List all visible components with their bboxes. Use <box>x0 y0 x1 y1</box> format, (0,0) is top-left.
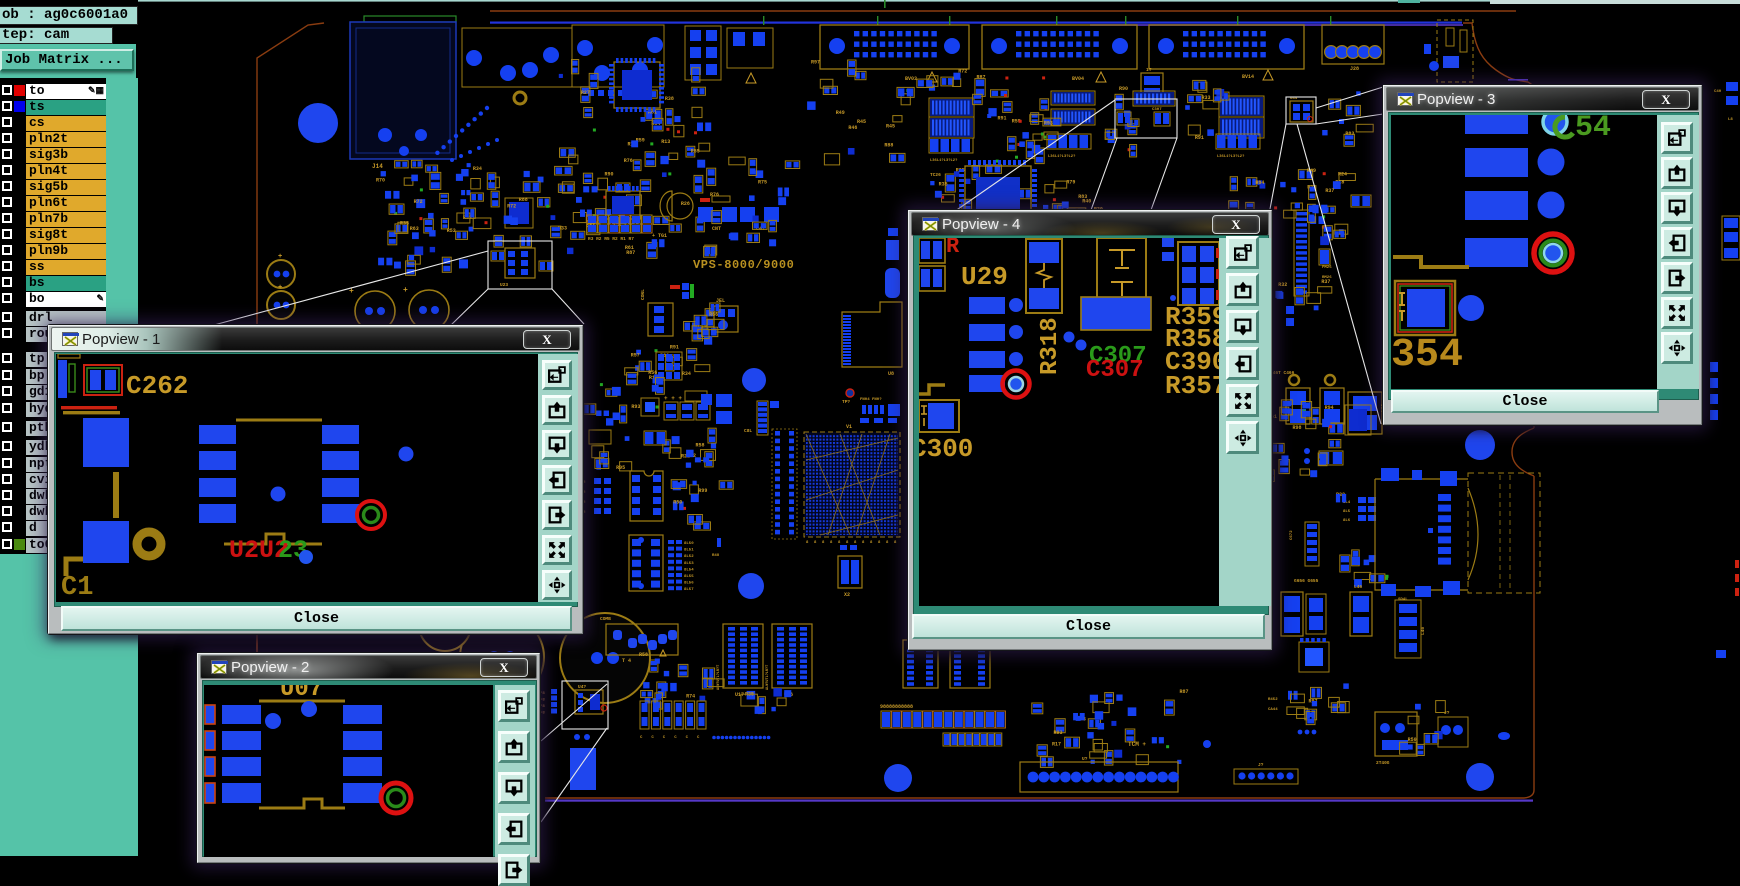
svg-text:U29: U29 <box>961 262 1008 292</box>
svg-text:R58: R58 <box>696 443 705 449</box>
svg-text:COMB: COMB <box>600 616 611 622</box>
svg-text:98888888888: 98888888888 <box>880 704 913 710</box>
svg-text:R93: R93 <box>631 404 640 410</box>
svg-text:R87: R87 <box>1179 689 1188 695</box>
svg-text:R57: R57 <box>631 352 640 358</box>
svg-text:+: + <box>278 284 282 292</box>
svg-text:R38: R38 <box>665 96 674 102</box>
svg-text:R88: R88 <box>884 142 893 148</box>
svg-text:R26: R26 <box>681 201 690 207</box>
svg-text:J?: J? <box>1258 762 1264 768</box>
svg-text:8L50: 8L50 <box>684 542 694 546</box>
svg-text:R45: R45 <box>886 124 895 130</box>
svg-text:C1: C1 <box>61 573 93 602</box>
svg-text:R91: R91 <box>1195 135 1204 141</box>
svg-text:8: 8 <box>854 541 857 545</box>
svg-text:R63: R63 <box>410 226 419 232</box>
svg-text:R37: R37 <box>1325 188 1334 194</box>
svg-text:L36L1?L3?L2?: L36L1?L3?L2? <box>930 159 958 163</box>
svg-text:U?: U? <box>1082 756 1088 762</box>
svg-text:R34: R34 <box>682 371 691 377</box>
svg-text:R: R <box>946 238 960 259</box>
svg-text:R90: R90 <box>605 171 614 177</box>
svg-text:R357: R357 <box>1165 371 1219 401</box>
svg-text:L36L1?L3?L2?: L36L1?L3?L2? <box>1048 155 1076 159</box>
svg-text:T 4: T 4 <box>622 658 631 664</box>
svg-text:R74: R74 <box>686 694 695 700</box>
svg-text:R66: R66 <box>709 312 718 318</box>
svg-text:R55: R55 <box>691 148 700 154</box>
svg-text:R13: R13 <box>661 139 670 145</box>
svg-text:SD4L: SD4L <box>1398 598 1408 602</box>
svg-text:R76: R76 <box>710 192 719 198</box>
svg-text:C8L: C8L <box>744 428 752 434</box>
svg-text:8L55: 8L55 <box>684 575 694 579</box>
svg-text:2T40G: 2T40G <box>1376 760 1390 766</box>
svg-text:J14: J14 <box>372 163 383 170</box>
svg-text:R35: R35 <box>400 221 409 227</box>
svg-text:8: 8 <box>870 541 873 545</box>
svg-text:8: 8 <box>806 541 809 545</box>
svg-text:BV03: BV03 <box>905 76 917 82</box>
svg-text:ALN?UTL?LR?T: ALN?UTL?LR?T <box>766 665 770 690</box>
svg-text:C307: C307 <box>1086 357 1144 384</box>
svg-text:R76: R76 <box>624 158 633 164</box>
svg-text:54: 54 <box>1575 115 1611 145</box>
svg-text:R91: R91 <box>997 116 1006 122</box>
svg-text:R17: R17 <box>1052 742 1061 748</box>
svg-text:R75: R75 <box>758 179 767 185</box>
svg-text:VPS-8000/9000: VPS-8000/9000 <box>693 258 794 272</box>
svg-text:8: 8 <box>822 541 825 545</box>
svg-text:8: 8 <box>886 541 889 545</box>
svg-text:CONL: CONL <box>640 289 646 300</box>
svg-text:BV14: BV14 <box>1242 74 1254 80</box>
svg-text:+ + +: + + + <box>664 395 682 402</box>
svg-text:C672: C672 <box>1290 530 1294 540</box>
svg-text:U17: U17 <box>735 692 744 698</box>
svg-text:8L6: 8L6 <box>1343 519 1351 523</box>
svg-text:C262: C262 <box>126 371 188 401</box>
svg-text:C307: C307 <box>1152 108 1162 112</box>
svg-text:C: C <box>640 736 643 740</box>
svg-text:U8: U8 <box>888 371 894 377</box>
svg-text:R72: R72 <box>958 68 967 74</box>
svg-text:L46: L46 <box>1420 627 1426 635</box>
svg-text:TC26: TC26 <box>930 172 941 178</box>
svg-text:8: 8 <box>838 541 841 545</box>
svg-text:C: C <box>651 736 654 740</box>
svg-text:8L56: 8L56 <box>684 582 694 586</box>
svg-text:C300: C300 <box>919 434 973 464</box>
svg-text:V1: V1 <box>846 424 852 430</box>
svg-text:R56: R56 <box>648 370 657 376</box>
svg-text:8: 8 <box>862 541 865 545</box>
svg-text:R318: R318 <box>1037 317 1064 375</box>
svg-text:U4?: U4? <box>578 684 586 690</box>
svg-text:R70: R70 <box>376 177 385 183</box>
svg-text:R97: R97 <box>811 59 820 65</box>
svg-text:TP?: TP? <box>842 399 850 405</box>
svg-text:L36L1?L3?L2?: L36L1?L3?L2? <box>1217 155 1245 159</box>
svg-text:R34: R34 <box>473 166 482 172</box>
svg-text:+: + <box>278 253 282 261</box>
svg-text:1T: 1T <box>1146 67 1152 73</box>
svg-text:R45: R45 <box>857 119 866 125</box>
svg-text:R452: R452 <box>1268 698 1278 702</box>
svg-text:U23: U23 <box>500 282 508 288</box>
svg-text:R91: R91 <box>670 344 679 350</box>
svg-text:FN04 FN0?: FN04 FN0? <box>860 398 882 402</box>
svg-text:X2: X2 <box>844 592 850 598</box>
svg-text:8: 8 <box>814 541 817 545</box>
svg-text:8: 8 <box>894 541 897 545</box>
svg-text:G656 G655: G656 G655 <box>1294 578 1319 584</box>
svg-text:R72: R72 <box>414 199 423 205</box>
svg-text:CA44: CA44 <box>1268 708 1278 712</box>
svg-text:8: 8 <box>846 541 849 545</box>
svg-text:R27: R27 <box>581 90 590 96</box>
svg-text:C: C <box>686 736 689 740</box>
svg-text:8L53: 8L53 <box>684 562 694 566</box>
svg-text:354: 354 <box>1391 333 1463 378</box>
svg-text:+: + <box>403 286 408 295</box>
svg-text:C: C <box>674 736 677 740</box>
svg-text:+ TG1: + TG1 <box>652 233 667 239</box>
svg-text:R58: R58 <box>639 652 648 658</box>
svg-text:C: C <box>663 736 666 740</box>
svg-text:BV04: BV04 <box>1072 76 1084 82</box>
svg-text:R93: R93 <box>1054 730 1063 736</box>
svg-text:8L57: 8L57 <box>684 588 694 592</box>
svg-text:R99: R99 <box>698 488 707 494</box>
svg-text:8L52: 8L52 <box>684 555 694 559</box>
svg-text:C40: C40 <box>1714 90 1722 94</box>
svg-text:FM26: FM26 <box>1322 266 1332 270</box>
svg-text:R72: R72 <box>507 203 516 209</box>
svg-text:R24: R24 <box>1338 172 1347 178</box>
svg-text:R32: R32 <box>1278 282 1287 288</box>
svg-text:R94: R94 <box>1325 405 1334 411</box>
svg-text:U44: U44 <box>1290 97 1298 101</box>
svg-text:J28: J28 <box>1350 66 1359 72</box>
svg-text:8L5: 8L5 <box>1343 510 1351 514</box>
svg-text:R98: R98 <box>1292 425 1301 431</box>
svg-text:R90: R90 <box>1119 86 1128 92</box>
svg-text:8L54: 8L54 <box>684 568 694 572</box>
svg-text:L46: L46 <box>1354 584 1362 590</box>
svg-text:R4G: R4G <box>712 554 720 558</box>
svg-text:R46: R46 <box>848 125 857 131</box>
svg-text:R37: R37 <box>1321 279 1330 285</box>
svg-text:R49: R49 <box>836 110 845 116</box>
svg-text:L8: L8 <box>1728 118 1733 122</box>
svg-text:R87: R87 <box>626 250 635 256</box>
svg-text:8: 8 <box>830 541 833 545</box>
svg-text:8L51: 8L51 <box>684 549 694 553</box>
svg-text:R53: R53 <box>447 228 456 234</box>
svg-text:R95: R95 <box>616 465 625 471</box>
svg-text:R49: R49 <box>1307 168 1316 174</box>
svg-text:R35: R35 <box>939 181 948 187</box>
svg-text:R79: R79 <box>1066 179 1075 185</box>
svg-text:R50: R50 <box>673 500 682 506</box>
svg-text:R50: R50 <box>1408 737 1417 743</box>
svg-text:R40: R40 <box>1082 199 1091 205</box>
svg-text:R84: R84 <box>1255 180 1264 186</box>
svg-text:C: C <box>697 736 700 740</box>
svg-text:R3 R2 R5 R2 R1 R7: R3 R2 R5 R2 R1 R7 <box>588 236 634 242</box>
svg-text:R33: R33 <box>1202 95 1211 101</box>
svg-text:R88: R88 <box>519 197 528 203</box>
svg-text:R93: R93 <box>1044 120 1053 126</box>
svg-text:CNT: CNT <box>712 226 721 232</box>
svg-text:8: 8 <box>878 541 881 545</box>
svg-text:TCM +: TCM + <box>1128 741 1146 748</box>
